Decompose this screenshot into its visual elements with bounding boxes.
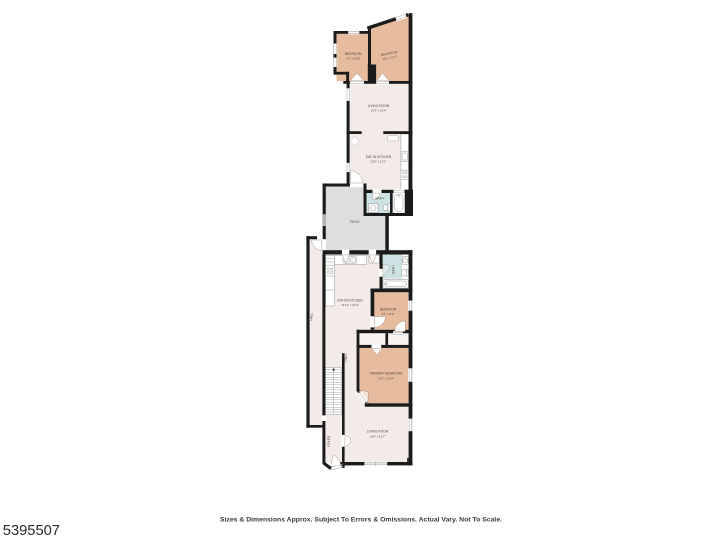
svg-text:11'3" x 12'4": 11'3" x 12'4" — [378, 377, 394, 381]
svg-text:BEDROOM: BEDROOM — [380, 308, 397, 312]
svg-text:13'5" x 12'1": 13'5" x 12'1" — [370, 159, 386, 163]
svg-text:BATH: BATH — [375, 197, 384, 201]
svg-text:PRIMARY BEDROOM: PRIMARY BEDROOM — [370, 372, 402, 376]
svg-text:PATIO: PATIO — [350, 220, 360, 224]
svg-text:EAT-IN KITCHEN: EAT-IN KITCHEN — [366, 155, 392, 159]
svg-text:BATH: BATH — [391, 265, 395, 274]
svg-text:HALL: HALL — [310, 312, 314, 320]
svg-text:13'4" x 13'4": 13'4" x 13'4" — [370, 108, 386, 112]
svg-text:14'5" x 12'7": 14'5" x 12'7" — [369, 435, 385, 439]
svg-text:11'11" x 21'4": 11'11" x 21'4" — [341, 303, 358, 307]
svg-text:EAT-IN KITCHEN: EAT-IN KITCHEN — [337, 299, 363, 303]
svg-text:LIVING ROOM: LIVING ROOM — [368, 104, 390, 108]
svg-text:Sizes & Dimensions Approx. Su: Sizes & Dimensions Approx. Subject To Er… — [220, 517, 502, 524]
svg-text:5395507: 5395507 — [3, 523, 60, 539]
svg-text:HALL: HALL — [344, 353, 348, 361]
svg-text:FOYER: FOYER — [327, 435, 331, 447]
svg-text:8'7" x 9'9": 8'7" x 9'9" — [382, 312, 395, 316]
svg-text:BEDROOM: BEDROOM — [345, 52, 362, 56]
svg-text:LIVING ROOM: LIVING ROOM — [367, 430, 389, 434]
svg-text:7'5" x 10'8": 7'5" x 10'8" — [346, 57, 360, 61]
